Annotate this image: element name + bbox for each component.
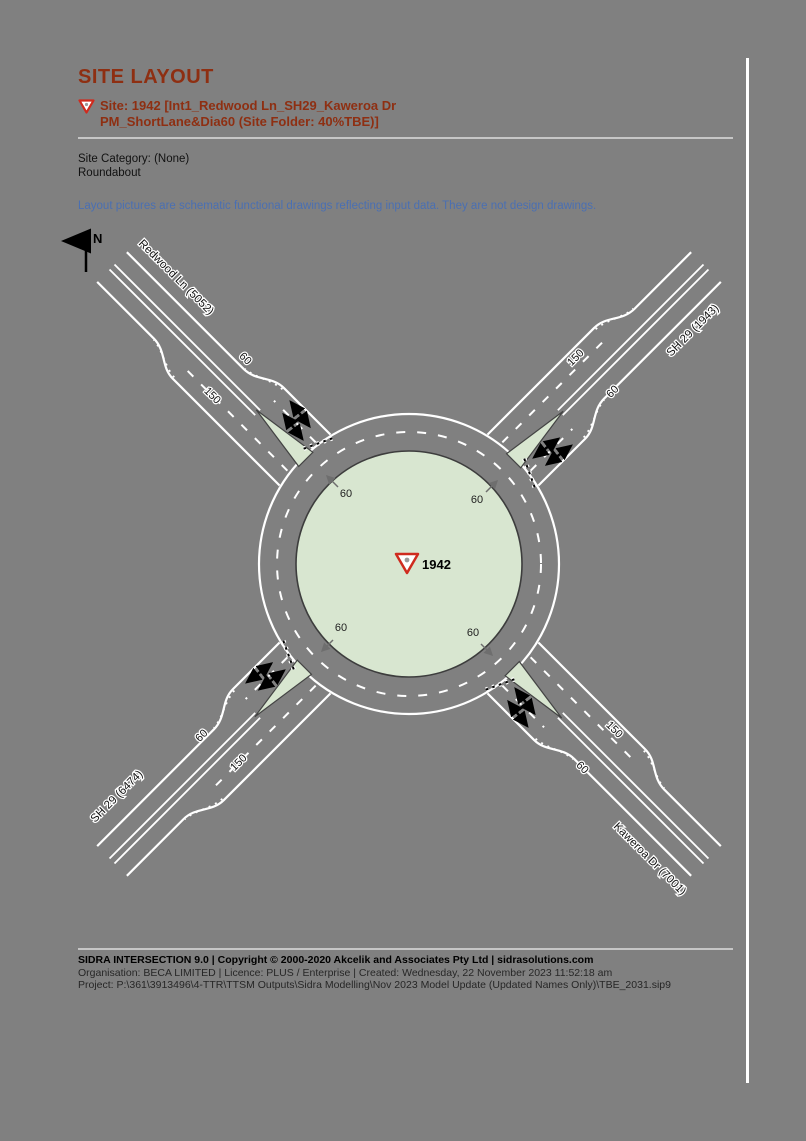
- island-speed-label-ne: 60: [471, 494, 483, 506]
- lane-length-ne-entry: 60: [604, 383, 621, 400]
- island-speed-label-nw: 60: [340, 488, 352, 500]
- page-right-border: [746, 58, 749, 1083]
- leg-road-nw: [87, 241, 335, 489]
- footer-divider: [78, 948, 733, 950]
- north-label: N: [93, 231, 102, 246]
- island-speed-label-se: 60: [467, 627, 479, 639]
- leg-name-nw: Redwood Ln (5052): [136, 238, 216, 318]
- leg-road-ne: [484, 242, 732, 490]
- lane-length-ne-exit: 150: [565, 347, 586, 368]
- leg-road-sw: [86, 638, 334, 886]
- leg-name-sw: SH 29 (6474): [89, 768, 146, 825]
- footer-organisation: Organisation: BECA LIMITED | Licence: PL…: [78, 967, 743, 980]
- lane-length-se-exit: 150: [603, 719, 624, 740]
- island-speed-label-sw: 60: [335, 622, 347, 634]
- lane-length-sw-entry: 60: [193, 727, 210, 744]
- leg-road-se: [483, 639, 731, 887]
- footer-project-path: Project: P:\361\3913496\4-TTR\TTSM Outpu…: [78, 979, 743, 992]
- site-id-label: 1942: [422, 557, 451, 572]
- footer: SIDRA INTERSECTION 9.0 | Copyright © 200…: [78, 954, 743, 992]
- footer-copyright: SIDRA INTERSECTION 9.0 | Copyright © 200…: [78, 954, 743, 967]
- leg-name-se: Kaweroa Dr (7001): [611, 821, 688, 898]
